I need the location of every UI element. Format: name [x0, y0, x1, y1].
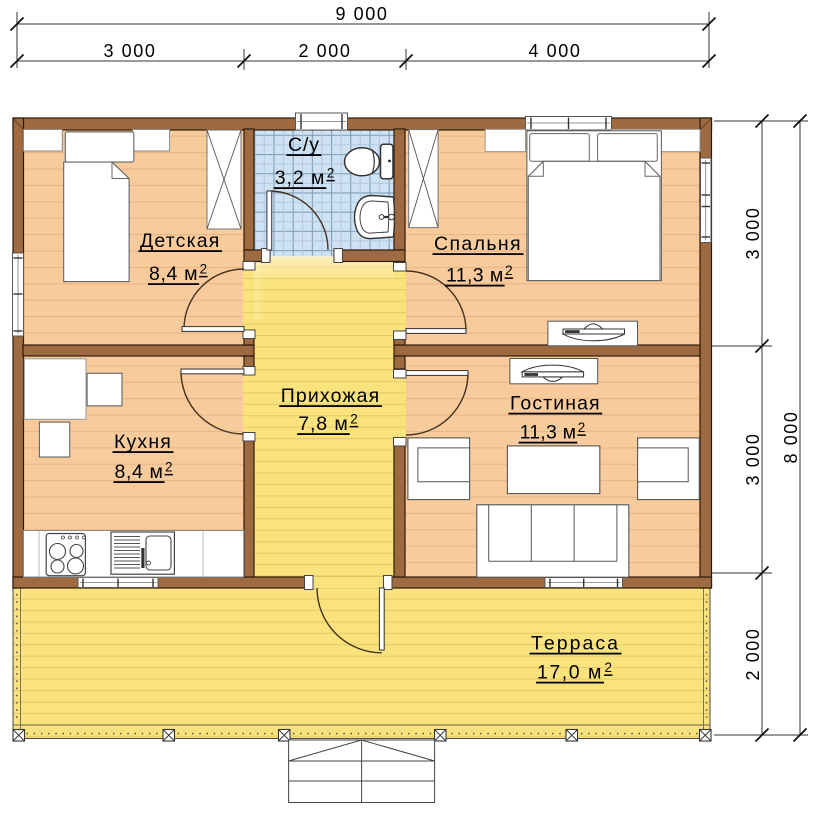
svg-text:2: 2 [165, 460, 173, 475]
svg-text:2: 2 [505, 263, 513, 278]
svg-text:3 000: 3 000 [103, 41, 156, 61]
svg-text:3,2 м: 3,2 м [275, 167, 326, 189]
svg-text:11,3 м: 11,3 м [446, 265, 504, 287]
svg-text:3 000: 3 000 [743, 432, 763, 485]
svg-text:Детская: Детская [140, 230, 221, 252]
svg-text:2 000: 2 000 [298, 41, 351, 61]
svg-text:2: 2 [327, 166, 335, 181]
svg-text:8 000: 8 000 [781, 410, 801, 463]
svg-text:Спальня: Спальня [434, 233, 522, 255]
svg-text:8,4 м: 8,4 м [115, 461, 164, 483]
svg-text:2 000: 2 000 [743, 627, 763, 680]
svg-text:8,4 м: 8,4 м [149, 263, 198, 285]
svg-text:Терраса: Терраса [531, 633, 620, 655]
svg-text:9 000: 9 000 [335, 4, 388, 24]
svg-text:С/у: С/у [288, 134, 320, 156]
svg-text:Прихожая: Прихожая [281, 385, 381, 407]
svg-text:7,8 м: 7,8 м [298, 413, 349, 435]
svg-text:4 000: 4 000 [528, 41, 581, 61]
svg-text:2: 2 [605, 660, 613, 675]
svg-text:17,0 м: 17,0 м [537, 662, 603, 684]
svg-text:2: 2 [350, 412, 358, 427]
svg-text:3 000: 3 000 [743, 206, 763, 259]
svg-text:2: 2 [200, 262, 208, 277]
svg-text:Кухня: Кухня [114, 431, 172, 453]
svg-text:11,3 м: 11,3 м [520, 422, 577, 444]
svg-text:2: 2 [578, 420, 586, 435]
svg-text:Гостиная: Гостиная [510, 393, 601, 415]
